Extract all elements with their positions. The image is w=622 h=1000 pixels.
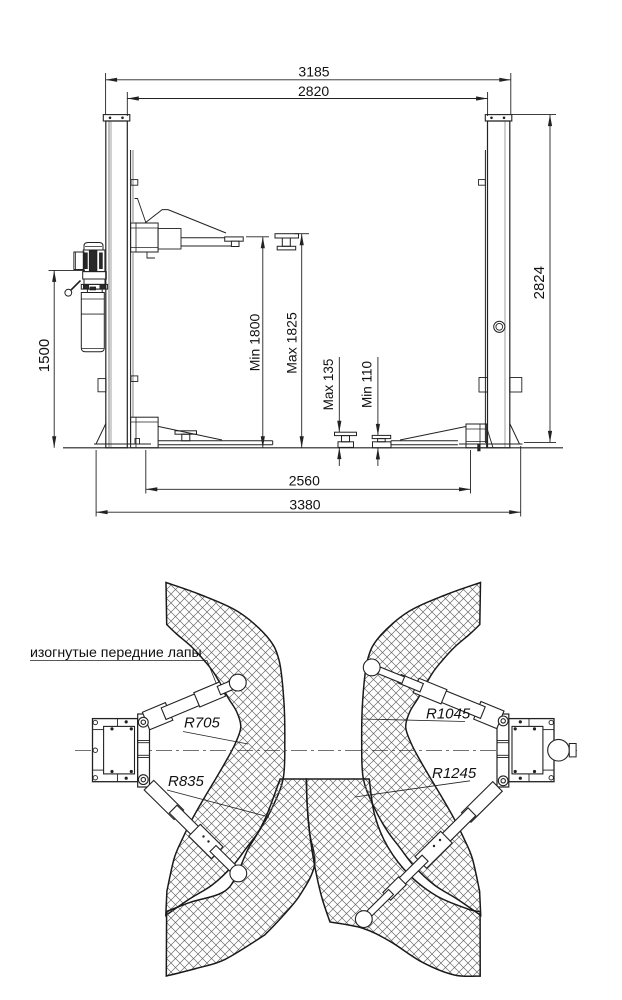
svg-text:Max 135: Max 135 xyxy=(321,359,336,411)
svg-text:Min 1800: Min 1800 xyxy=(247,313,263,371)
svg-text:Min 110: Min 110 xyxy=(360,361,375,408)
svg-text:R1245: R1245 xyxy=(432,765,477,782)
svg-text:3185: 3185 xyxy=(298,63,329,79)
svg-text:изогнутые передние лапы: изогнутые передние лапы xyxy=(30,645,202,661)
svg-text:R705: R705 xyxy=(184,715,221,732)
svg-text:2560: 2560 xyxy=(289,473,320,489)
svg-text:1500: 1500 xyxy=(36,339,53,372)
svg-text:2824: 2824 xyxy=(531,266,548,299)
svg-text:Max 1825: Max 1825 xyxy=(284,312,300,374)
svg-text:3380: 3380 xyxy=(289,497,320,513)
svg-text:R835: R835 xyxy=(168,773,205,790)
svg-text:2820: 2820 xyxy=(298,83,329,99)
svg-text:R1045: R1045 xyxy=(426,706,471,723)
